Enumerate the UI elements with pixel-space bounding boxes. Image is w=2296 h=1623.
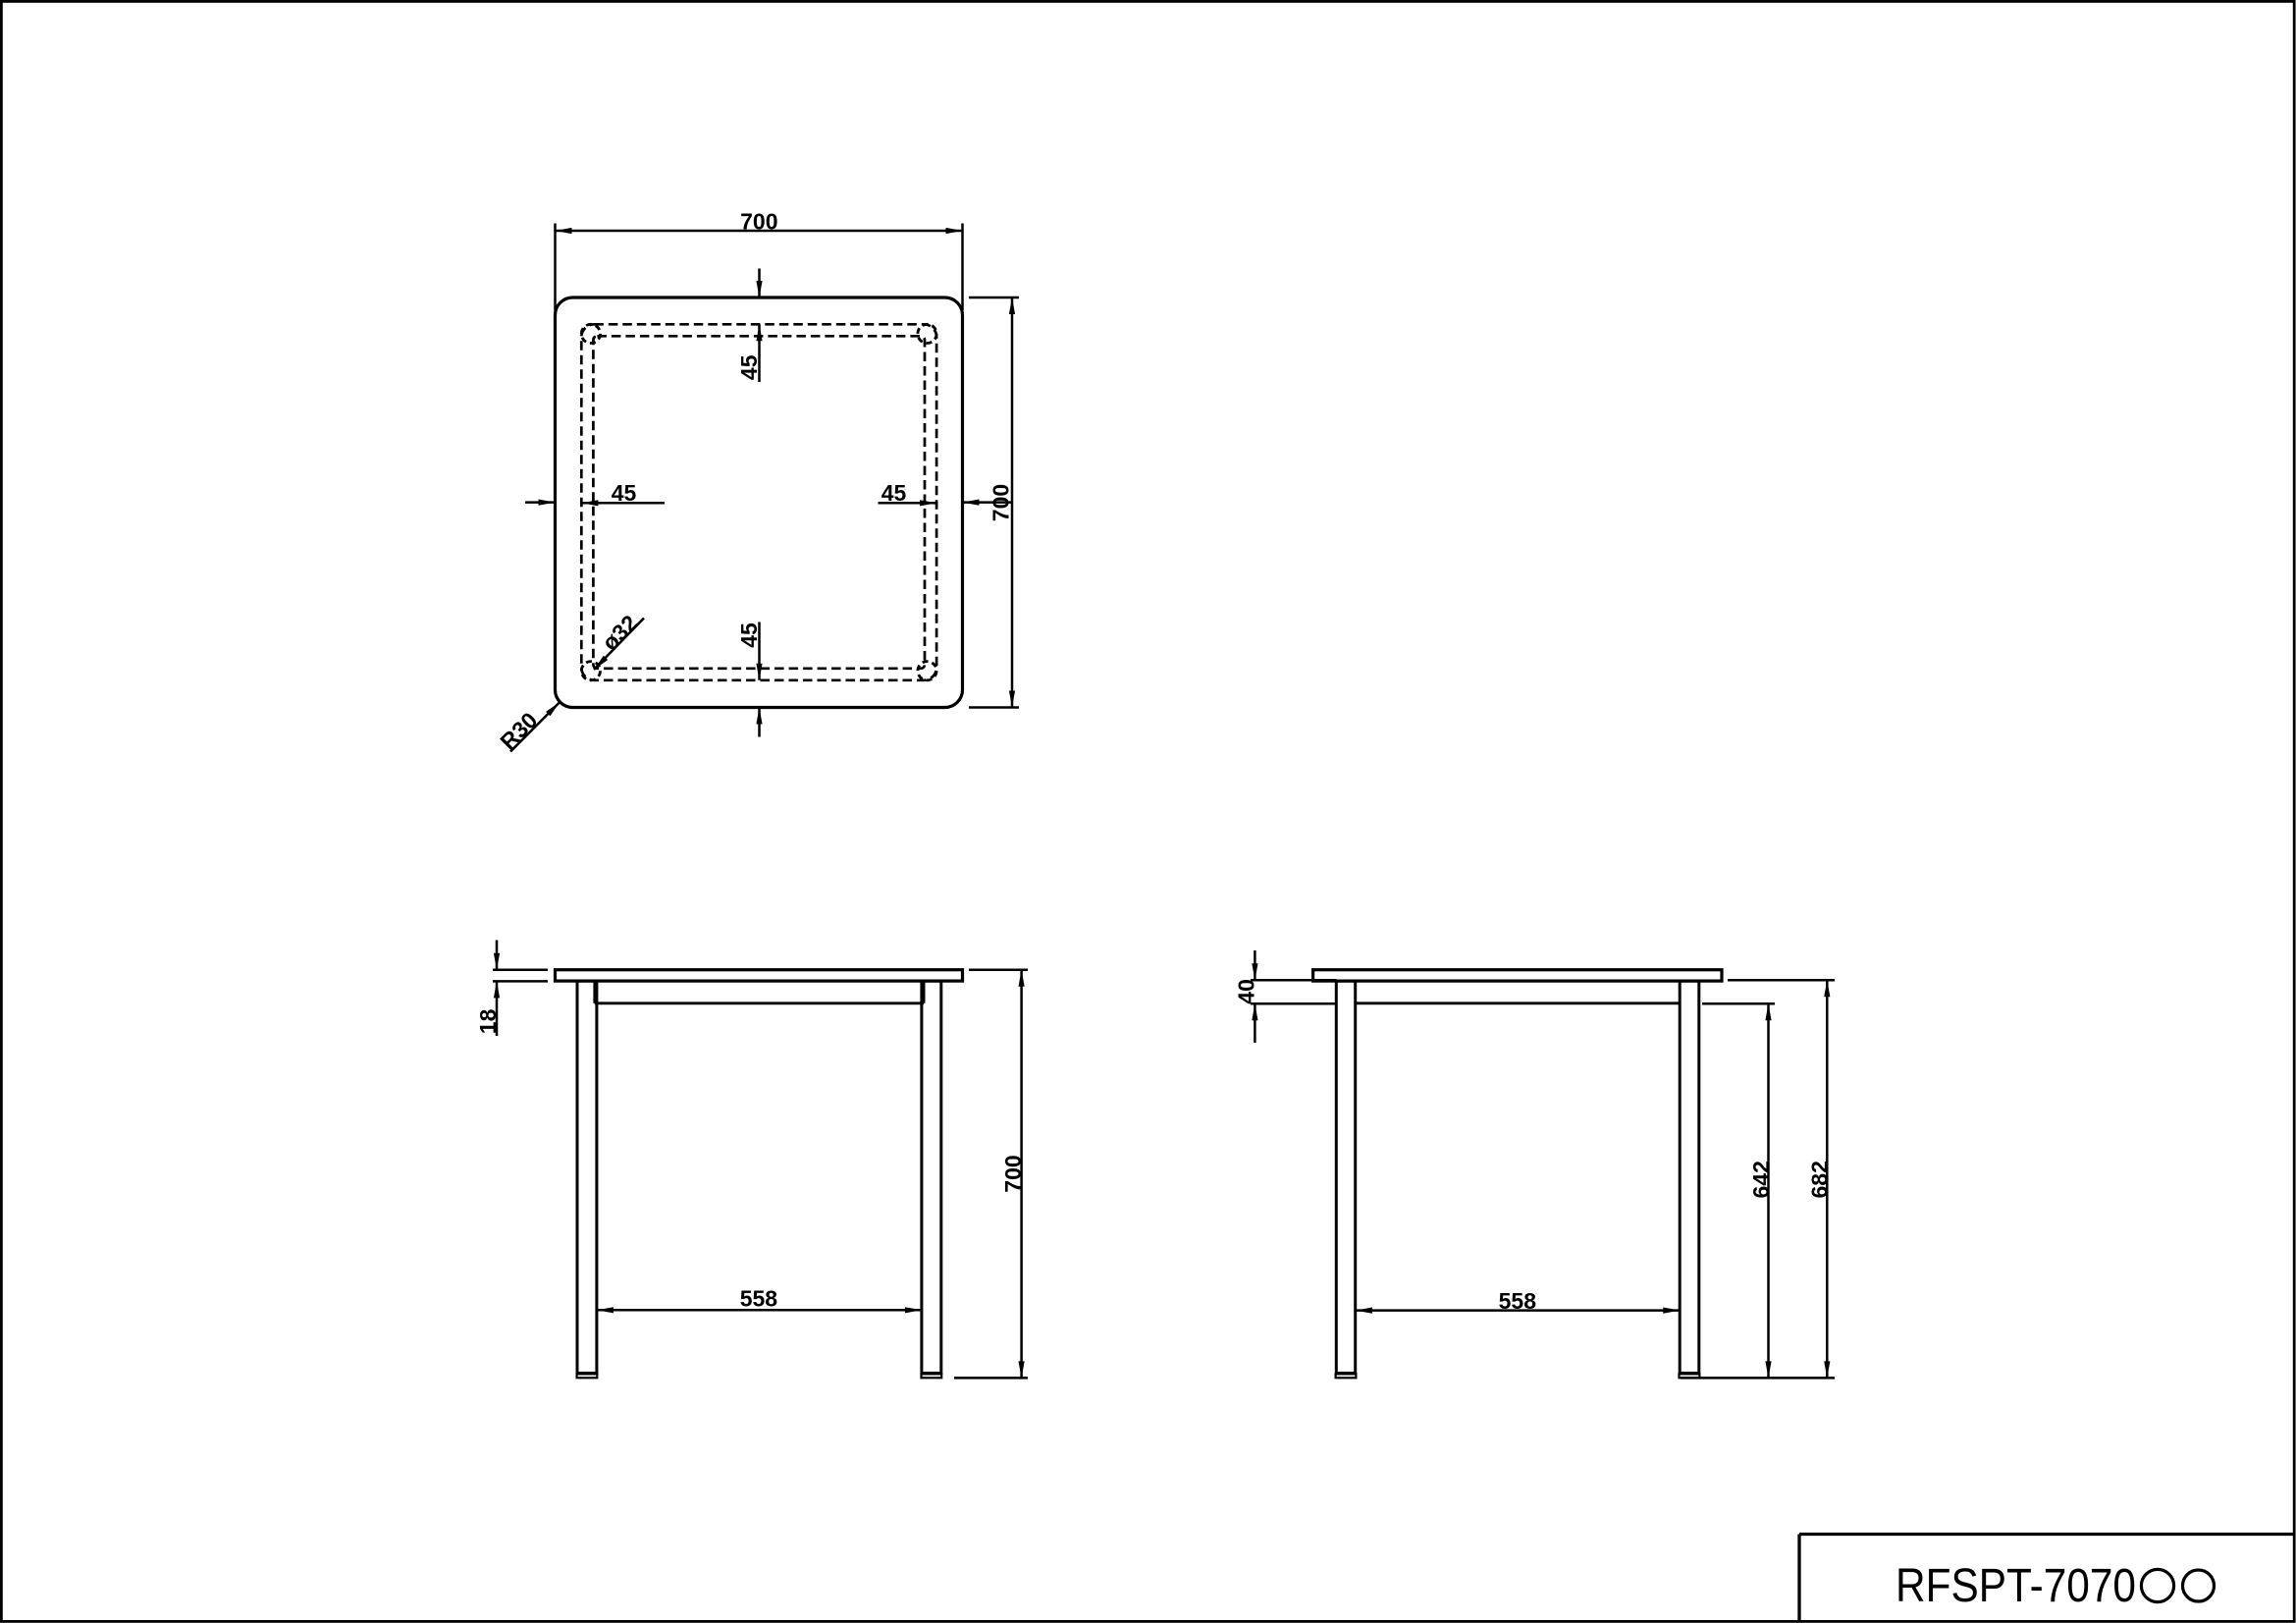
svg-text:682: 682 <box>1807 1161 1833 1198</box>
svg-text:558: 558 <box>1499 1288 1537 1314</box>
svg-text:ø32: ø32 <box>597 610 642 655</box>
svg-text:642: 642 <box>1748 1161 1774 1198</box>
svg-text:45: 45 <box>612 480 637 506</box>
svg-text:45: 45 <box>736 354 762 380</box>
svg-text:45: 45 <box>736 622 762 648</box>
svg-text:40: 40 <box>1234 979 1259 1004</box>
svg-text:45: 45 <box>881 480 907 506</box>
svg-text:R30: R30 <box>495 707 542 754</box>
svg-text:RFSPT-7070: RFSPT-7070 <box>1896 1560 2136 1612</box>
svg-text:700: 700 <box>1000 1155 1026 1192</box>
svg-text:558: 558 <box>740 1286 778 1312</box>
svg-text:700: 700 <box>740 209 777 235</box>
svg-text:18: 18 <box>475 1008 501 1034</box>
